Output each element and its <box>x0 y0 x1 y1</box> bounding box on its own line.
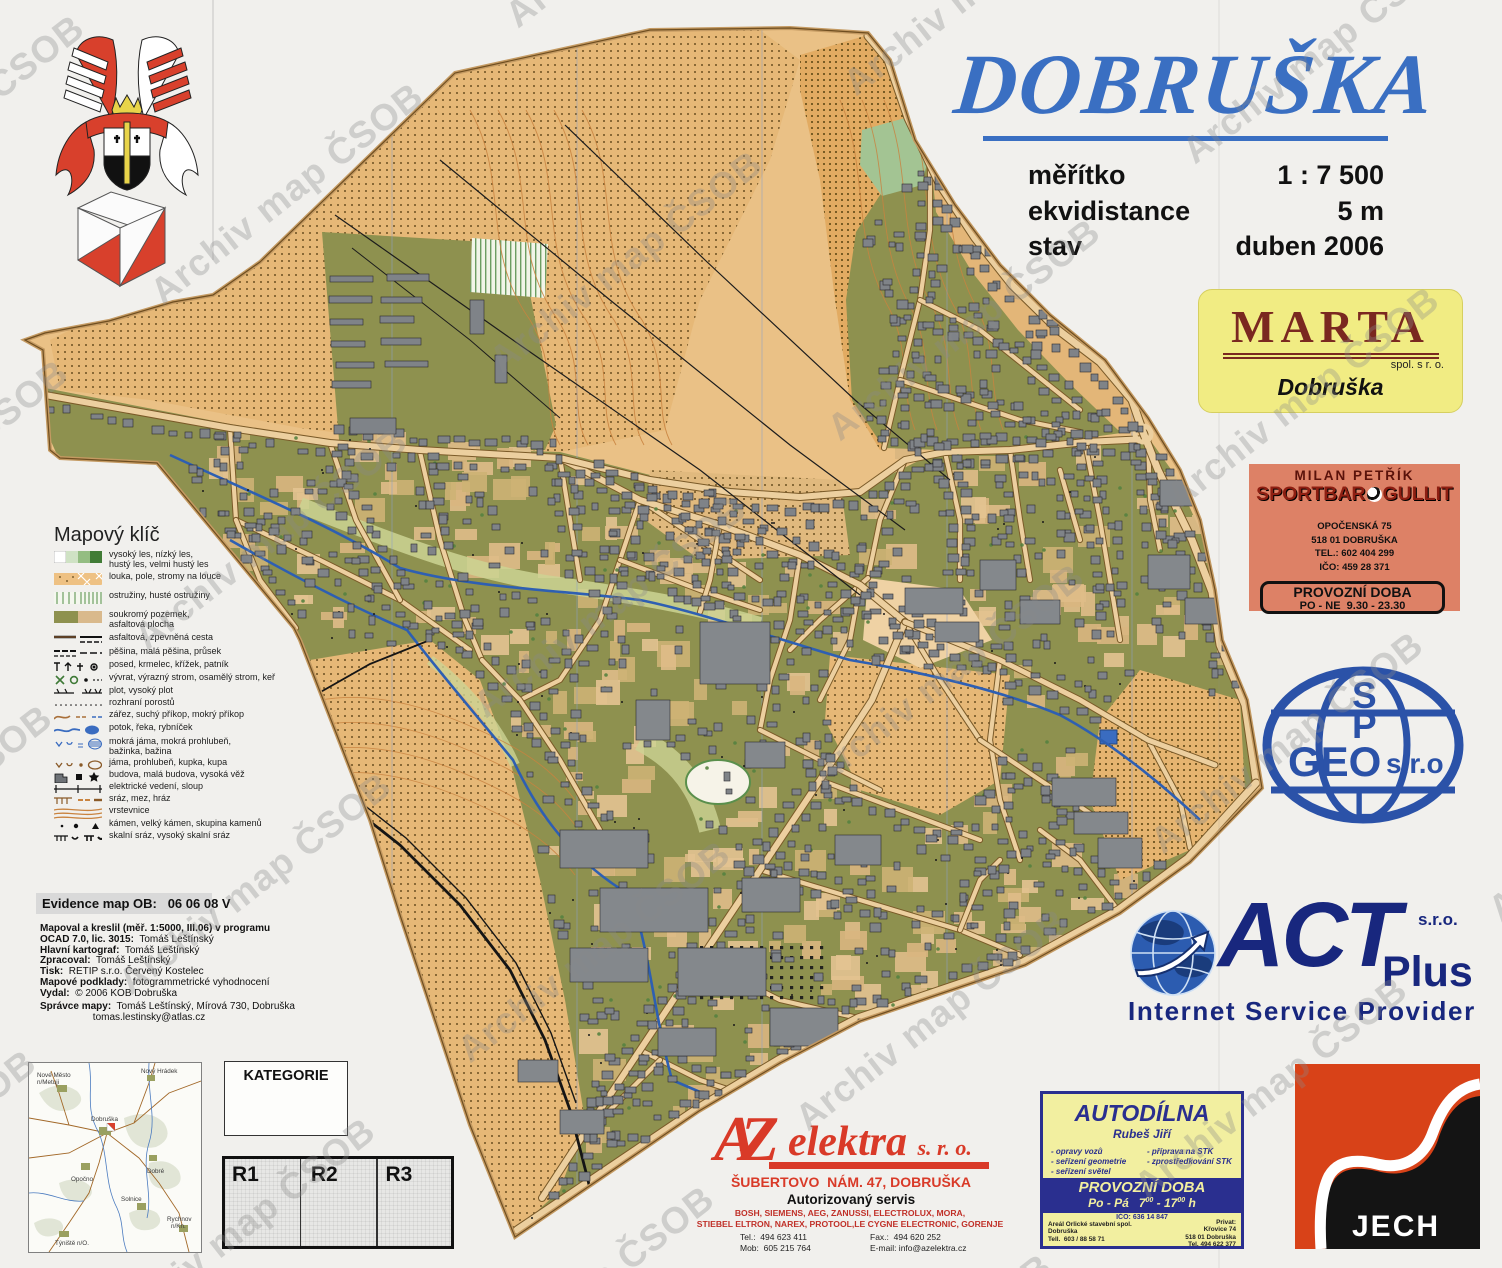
svg-text:n/Metuji: n/Metuji <box>37 1079 59 1086</box>
svg-text:Opočno: Opočno <box>71 1176 94 1183</box>
svg-text:Nové Město: Nové Město <box>37 1072 71 1079</box>
svg-text:Dobré: Dobré <box>147 1168 165 1175</box>
svg-text:L: L <box>1354 785 1377 826</box>
svg-text:Rychnov: Rychnov <box>167 1216 192 1223</box>
svg-text:n/Kn.: n/Kn. <box>171 1223 186 1230</box>
svg-text:GEO: GEO <box>1288 738 1381 785</box>
svg-text:Solnice: Solnice <box>121 1196 142 1203</box>
svg-text:Týniště n/O.: Týniště n/O. <box>55 1240 89 1247</box>
svg-text:Dobruška: Dobruška <box>91 1116 118 1123</box>
svg-text:Nový Hrádek: Nový Hrádek <box>141 1068 178 1075</box>
svg-text:JECH: JECH <box>1352 1210 1440 1243</box>
svg-text:s.r.o: s.r.o <box>1386 748 1444 779</box>
